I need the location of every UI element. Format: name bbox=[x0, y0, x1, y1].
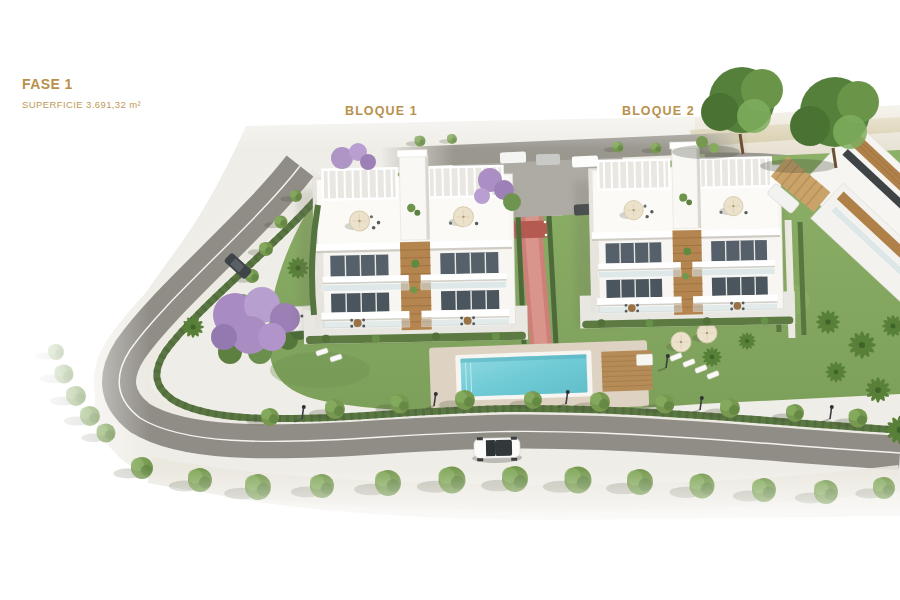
bloque-1-label: BLOQUE 1 bbox=[345, 104, 418, 118]
pool-shower bbox=[636, 354, 652, 366]
car-on-road bbox=[472, 437, 522, 464]
left-fade bbox=[0, 90, 150, 600]
bloque-2-label: BLOQUE 2 bbox=[622, 104, 695, 118]
site-plan-render: FASE 1 SUPERFICIE 3.691,32 m² BLOQUE 1 B… bbox=[0, 0, 900, 600]
phase-label: FASE 1 bbox=[22, 76, 73, 92]
phase-area-label: SUPERFICIE 3.691,32 m² bbox=[22, 99, 141, 110]
render-canvas bbox=[0, 0, 900, 600]
